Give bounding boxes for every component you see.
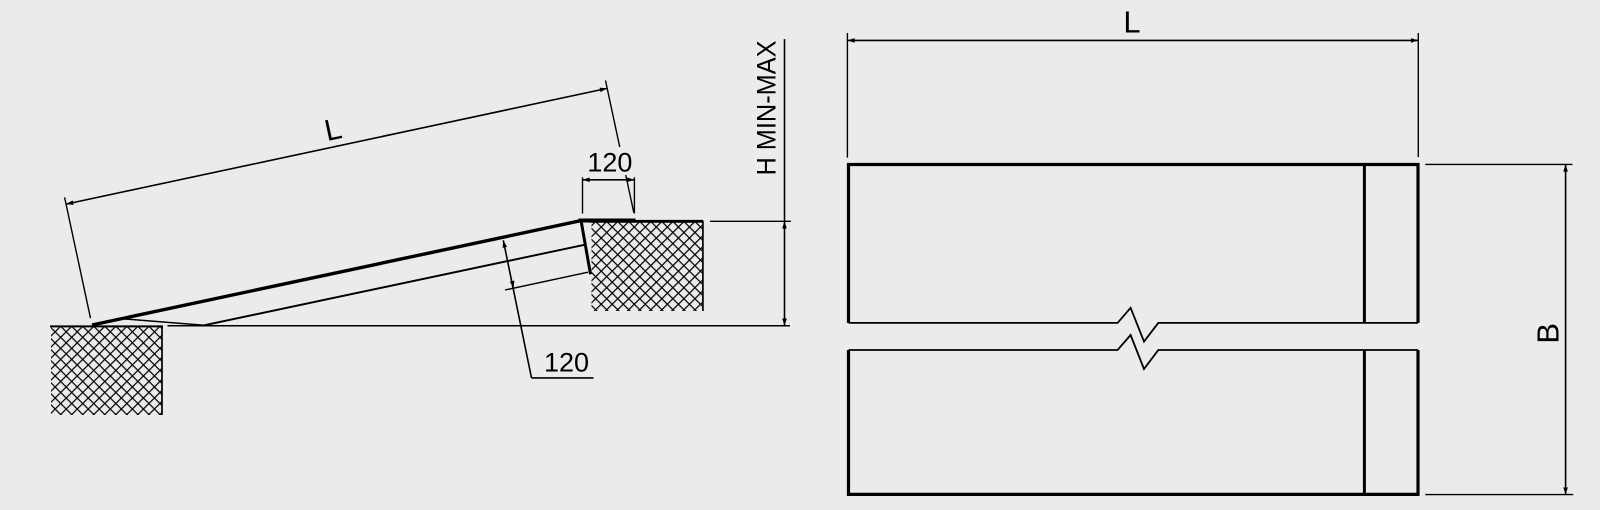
svg-text:120: 120 bbox=[544, 347, 589, 377]
svg-text:H MIN-MAX: H MIN-MAX bbox=[752, 41, 782, 176]
svg-text:L: L bbox=[1123, 5, 1140, 40]
svg-text:B: B bbox=[1531, 323, 1566, 344]
svg-text:120: 120 bbox=[587, 147, 632, 177]
